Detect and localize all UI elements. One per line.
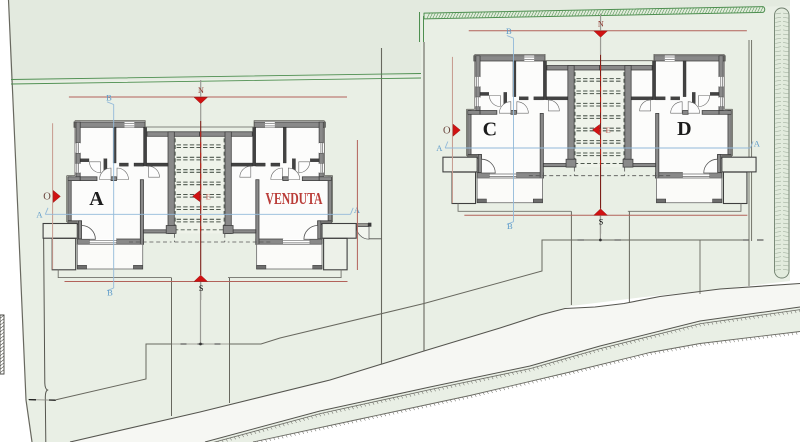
svg-text:C: C xyxy=(483,119,497,141)
svg-text:O: O xyxy=(43,192,51,203)
svg-text:VENDUTA: VENDUTA xyxy=(266,189,323,208)
svg-text:A: A xyxy=(36,210,43,220)
svg-text:B: B xyxy=(107,288,113,298)
svg-text:N: N xyxy=(198,86,204,95)
svg-text:B: B xyxy=(106,93,112,103)
svg-text:D: D xyxy=(677,118,691,140)
svg-text:A: A xyxy=(89,188,104,210)
svg-text:E: E xyxy=(206,192,211,201)
svg-text:S: S xyxy=(199,284,204,293)
